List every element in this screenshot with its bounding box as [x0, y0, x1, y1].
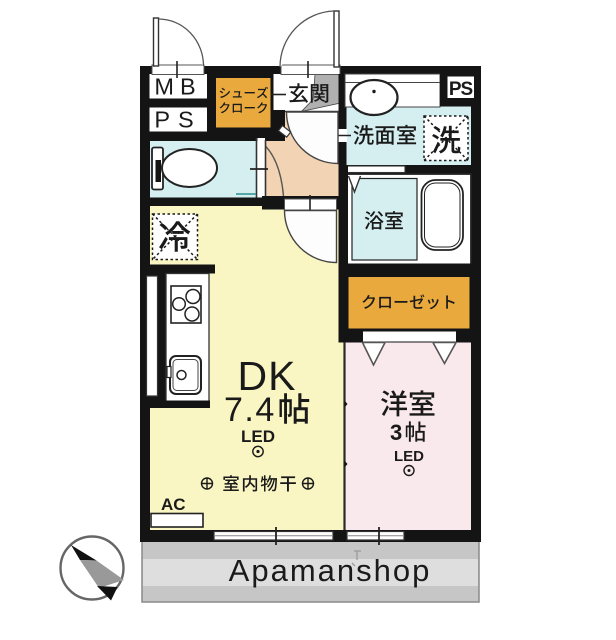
svg-text:7.4: 7.4: [224, 391, 276, 429]
svg-text:LED: LED: [394, 448, 424, 465]
svg-text:MB: MB: [154, 74, 201, 100]
svg-text:LED: LED: [241, 427, 275, 446]
svg-text:Apamanshop: Apamanshop: [229, 553, 432, 588]
svg-text:PS: PS: [154, 107, 201, 133]
svg-text:AC: AC: [161, 495, 186, 514]
svg-text:PS: PS: [449, 79, 473, 100]
svg-text:3: 3: [390, 420, 402, 445]
